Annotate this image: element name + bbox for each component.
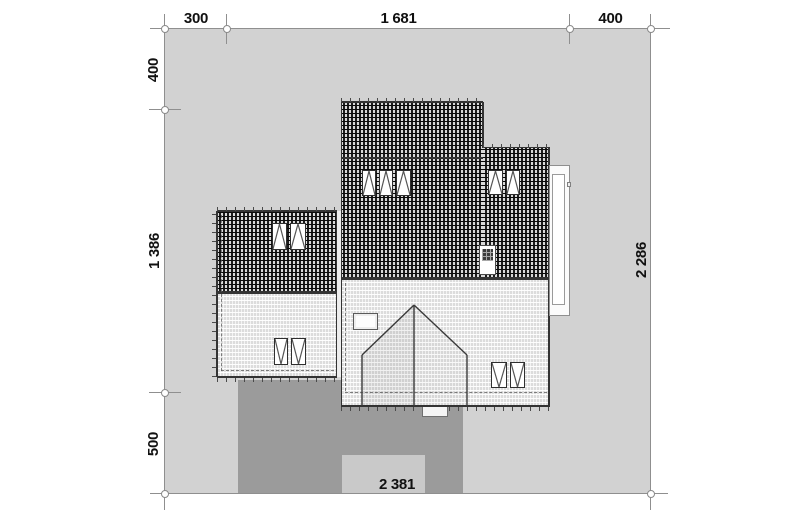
eave-ticks-wing-bottom [217,378,337,382]
dim-line-bottom [150,493,668,494]
main-ridge-line [341,277,550,280]
side-terrace [549,165,570,316]
terrace-detail-marker [567,182,571,187]
roof-window [362,170,376,196]
overhang-dashed-wing [221,370,334,371]
dimension-label-left-bottom: 500 [146,432,162,456]
roof-window [488,170,503,195]
dimension-label-top-right: 400 [570,11,651,27]
overhang-dashed-wing-left [221,215,222,371]
eave-ticks-wing-left [212,211,216,377]
chimney-flue [482,249,493,261]
site-plan-canvas: 300 1 681 400 400 1 386 500 2 286 2 381 [0,0,800,524]
main-upper-ridge-line [341,157,483,159]
overhang-dashed-main [345,392,547,393]
roof-window [272,223,287,250]
chimney [479,245,496,275]
roof-window [396,170,411,196]
side-terrace-inner [552,174,565,305]
dimension-label-top-left: 300 [165,11,227,27]
entrance-step [422,407,448,417]
dim-line-right [650,14,651,510]
dimension-label-bottom-total: 2 381 [347,477,447,493]
eave-ticks-main-top [341,98,483,102]
roof-window [379,170,393,196]
roof-window [506,170,520,195]
dimension-label-top-middle: 1 681 [227,11,570,27]
dim-line-left [164,14,165,510]
left-wing-left-edge [216,211,218,377]
roof-window [291,338,306,365]
dimension-marker [161,106,169,114]
dimension-marker [161,389,169,397]
overhang-dashed-main-left [345,283,346,391]
left-wing-right-edge [336,211,338,377]
roof-window [510,362,525,388]
eave-ticks-wing-top [217,207,337,211]
dimension-marker [161,490,169,498]
main-block-left-edge [341,102,343,407]
flat-roof-window [353,313,378,330]
left-wing-ridge-line [217,291,337,294]
dimension-label-left-top: 400 [146,58,162,82]
roof-window [491,362,507,388]
eave-ticks-right-top [483,144,550,148]
dimension-marker [647,490,655,498]
main-block-step-edge [482,102,484,148]
roof-window [290,223,306,250]
roof-window [274,338,288,365]
dimension-label-right-total: 2 286 [634,242,650,278]
dimension-label-left-middle: 1 386 [147,233,163,269]
